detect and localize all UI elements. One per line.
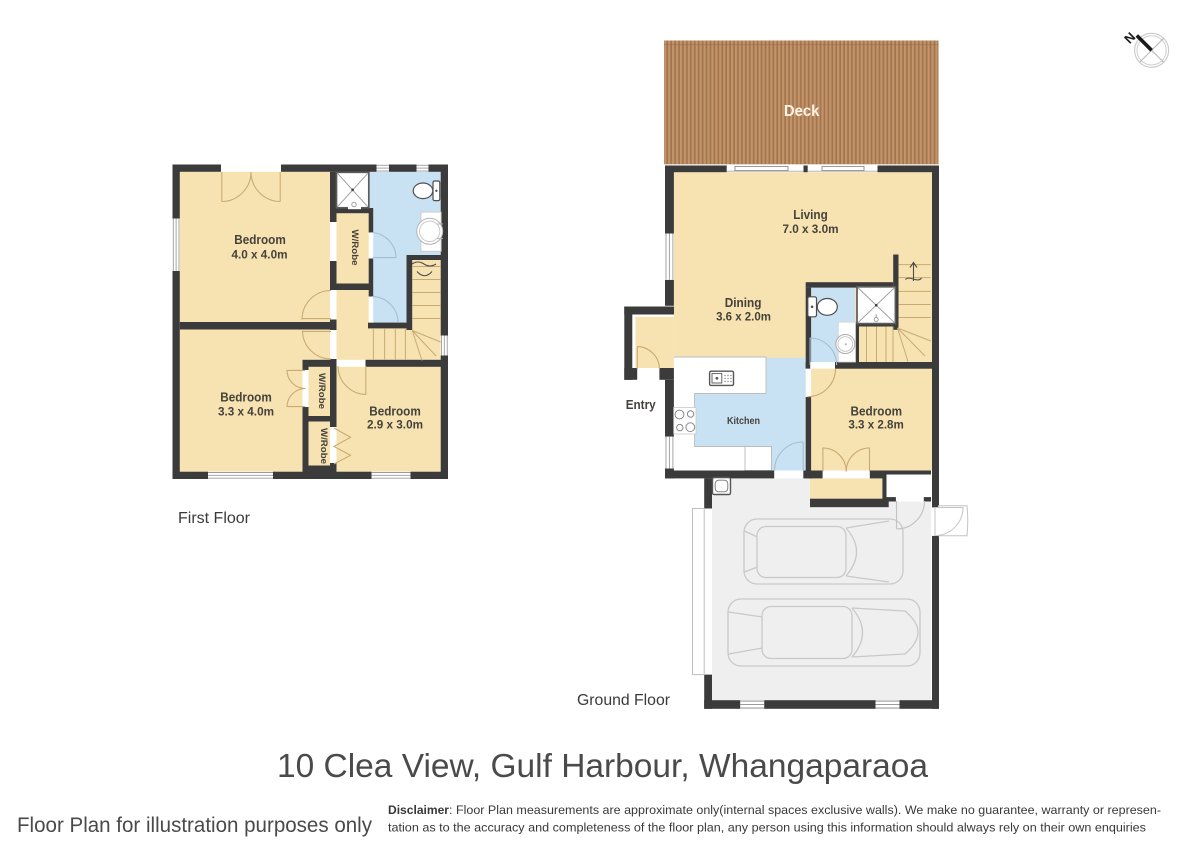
svg-text:: Floor Plan measurements are: : Floor Plan measurements are approximat…	[449, 803, 1161, 817]
svg-text:Floor Plan for illustration pu: Floor Plan for illustration purposes onl…	[17, 814, 372, 837]
svg-text:W/Robe: W/Robe	[319, 428, 329, 464]
svg-text:3.6 x 2.0m: 3.6 x 2.0m	[716, 310, 771, 324]
svg-text:4.0 x 4.0m: 4.0 x 4.0m	[232, 248, 288, 262]
svg-text:Bedroom: Bedroom	[234, 232, 286, 247]
svg-text:Dining: Dining	[725, 295, 762, 310]
svg-text:7.0 x 3.0m: 7.0 x 3.0m	[783, 222, 839, 236]
svg-text:Bedroom: Bedroom	[220, 389, 272, 404]
svg-text:Deck: Deck	[784, 103, 820, 120]
svg-text:Entry: Entry	[626, 397, 657, 412]
svg-text:2.9 x 3.0m: 2.9 x 3.0m	[367, 417, 423, 431]
svg-text:Living: Living	[793, 207, 828, 222]
svg-text:First Floor: First Floor	[178, 510, 251, 527]
svg-text:Ground Floor: Ground Floor	[577, 692, 671, 709]
svg-text:W/Robe: W/Robe	[350, 230, 360, 266]
svg-text:3.3 x 2.8m: 3.3 x 2.8m	[848, 418, 904, 432]
svg-text:Bedroom: Bedroom	[851, 404, 903, 419]
svg-text:Disclaimer: Disclaimer	[388, 803, 449, 817]
svg-text:3.3 x 4.0m: 3.3 x 4.0m	[218, 404, 274, 418]
svg-text:Bedroom: Bedroom	[369, 404, 421, 419]
svg-text:Kitchen: Kitchen	[727, 416, 760, 427]
svg-text:10 Clea View, Gulf Harbour, Wh: 10 Clea View, Gulf Harbour, Whangaparaoa	[277, 748, 928, 785]
svg-text:tation as to the accuracy and: tation as to the accuracy and completene…	[388, 821, 1146, 835]
svg-text:W/Robe: W/Robe	[317, 373, 327, 409]
